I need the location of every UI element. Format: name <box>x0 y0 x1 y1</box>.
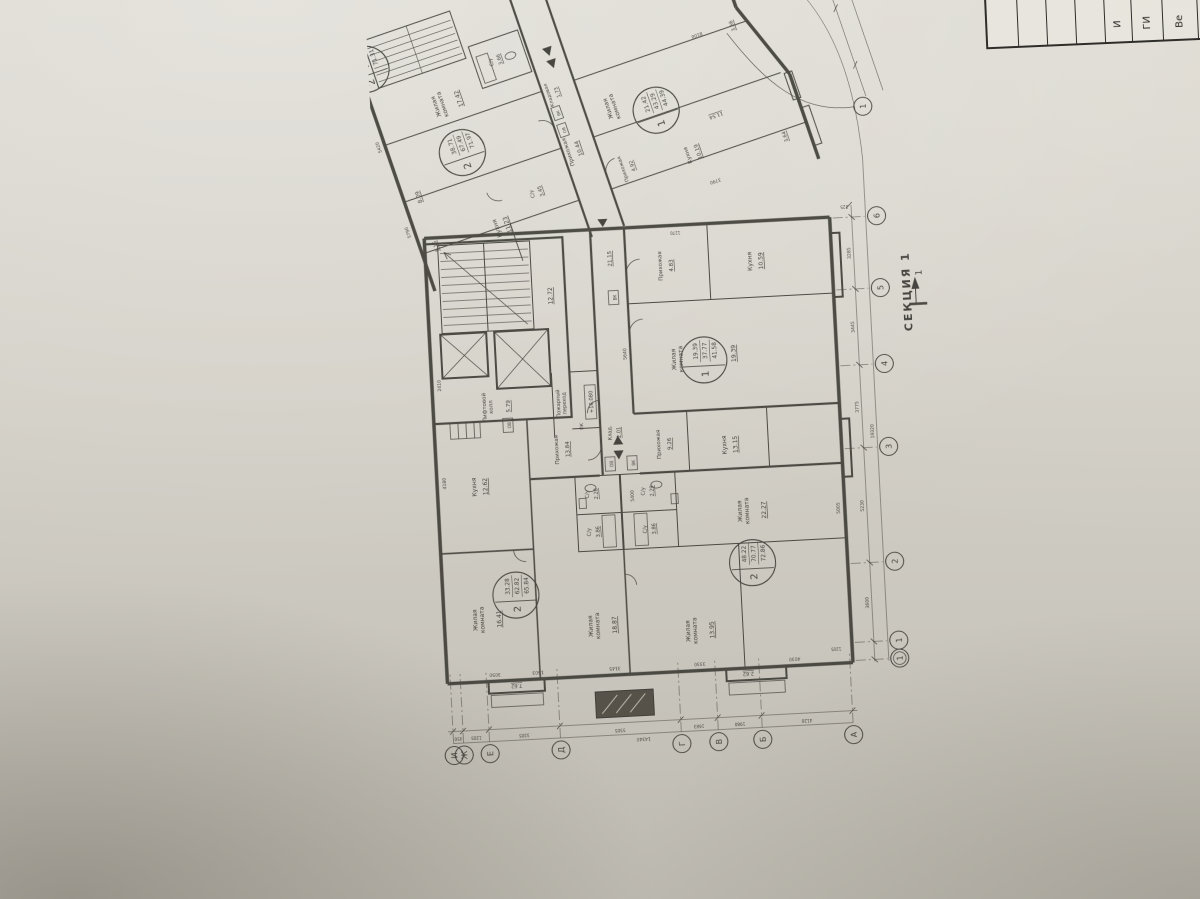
axis-line <box>851 562 883 564</box>
dim-or-area-label: 3145 <box>609 665 621 672</box>
axis-letter: А <box>849 731 858 737</box>
dim-or-area-label: 3.86 <box>651 523 658 534</box>
stamp-area-value: 70.77 <box>751 545 758 562</box>
room-label: Пожарныйпереход <box>554 389 568 418</box>
dim-or-area-label: 1270 <box>670 230 681 236</box>
room-label: С/у <box>528 189 536 199</box>
room-label: Прихожая <box>616 155 630 182</box>
dim-or-area-label: 4180 <box>442 478 449 490</box>
room-label: ВК <box>612 294 617 300</box>
dim-or-area-label: 5230 <box>859 500 866 512</box>
toilet <box>504 51 517 61</box>
axis-letter: Е <box>486 751 495 757</box>
room-label: ВК <box>631 460 636 466</box>
room-label: Жилаякомната <box>472 606 487 634</box>
stamp-divider <box>444 151 484 165</box>
dim-or-area-label: 2.29 <box>649 485 656 496</box>
dim-or-area-label: 3.64 <box>781 130 790 142</box>
dim-or-area-label: 450 <box>454 736 463 741</box>
axis-line <box>836 288 868 290</box>
room-label: С/у <box>587 528 593 536</box>
axis-letter: И <box>450 752 459 758</box>
room-label: Кухня <box>683 146 694 164</box>
dim-or-area-label: 225 <box>840 204 848 209</box>
door-swings <box>499 259 657 591</box>
room-label: Жилаякомната <box>587 612 602 640</box>
axis-letter: Г <box>678 741 687 746</box>
room-label: Прихожая <box>655 430 663 460</box>
room-label: ОВ <box>609 461 614 468</box>
room-label: С/у <box>642 525 648 533</box>
dim-or-area-label: +16.080 <box>588 390 595 413</box>
dim-or-area-label: 13.95 <box>709 621 717 639</box>
axis-number: 5 <box>876 285 885 291</box>
dim-or-area-label: 2410 <box>437 380 444 392</box>
dim-or-area-label: 2.01 <box>616 427 623 438</box>
dim-or-area-label: 22.27 <box>760 501 768 519</box>
dim-or-area-label: 3330 <box>694 660 706 667</box>
floor-plan-svg: 8.095.15Кухня11.23С/у3.45Прихожая10.44Кл… <box>365 0 965 786</box>
dim-or-area-label: 3.66 <box>495 53 504 65</box>
stamp-area-value: 41.58 <box>712 342 719 359</box>
stamp-area-value: 37.77 <box>702 342 709 359</box>
dim-or-area-label: 13.15 <box>732 435 740 453</box>
axis-number: 2 <box>890 558 899 564</box>
room-label: С/у <box>640 487 646 495</box>
room-label: Кухня <box>746 251 754 271</box>
dim-or-area-label: 19320 <box>869 424 876 439</box>
corridor-arrows <box>613 435 624 459</box>
section-title: СЕКЦИЯ 1 <box>898 251 915 332</box>
dim-or-area-label: 1980 <box>734 721 745 727</box>
dim-or-area-label: 3.86 <box>595 526 602 537</box>
stamp-room-count: 2 <box>462 161 474 171</box>
dim-or-area-label: 11.54 <box>708 110 724 120</box>
dim-or-area-label: 2.62 <box>743 670 754 677</box>
axis-line <box>845 447 877 449</box>
title-block-cell: Ве <box>1162 0 1199 40</box>
dim-or-area-label: 1503 <box>532 669 544 676</box>
room-label: ПК <box>579 422 585 430</box>
dim-or-area-label: 17.42 <box>453 89 465 108</box>
entrance-steps <box>458 422 475 439</box>
stamp-area-value: 33.28 <box>505 578 512 595</box>
title-block-cell <box>1017 0 1048 46</box>
title-block-cell <box>986 0 1019 47</box>
dim-or-area-label: 3050 <box>489 671 501 678</box>
dim-or-area-label: 4.92 <box>628 160 637 172</box>
title-block-cell: И <box>1104 0 1133 42</box>
section2-fragment: 8.095.15Кухня11.23С/у3.45Прихожая10.44Кл… <box>365 0 897 296</box>
dim-or-area-label: 5400 <box>630 490 637 502</box>
dim-or-area-label: 2.28 <box>593 488 600 499</box>
dim-or-area-label: 13.84 <box>565 441 572 458</box>
axis-line <box>840 364 872 366</box>
dim-or-area-label: 1.73 <box>553 86 562 98</box>
room-label: Жилаякомната <box>601 92 623 122</box>
dim-or-area-label: 5.79 <box>506 399 513 412</box>
axis-number: 4 <box>880 361 889 367</box>
axis-number: 1 <box>859 103 868 109</box>
axis-letter: Б <box>758 736 767 742</box>
axis-line <box>856 659 888 661</box>
room-label: Клад. <box>607 425 614 441</box>
title-block-cell <box>1046 0 1077 45</box>
room-label: ОВ <box>561 126 568 133</box>
dim-or-area-label: 4030 <box>789 655 801 662</box>
axis-number: 1 <box>895 637 904 643</box>
dim-or-area-label: 3285 <box>846 247 853 259</box>
stair-direction-arrow <box>444 248 528 328</box>
stamp-room-count: 2 <box>749 573 760 580</box>
title-block: И ГИ Ве <box>984 0 1200 49</box>
stamp-area-value: 65.84 <box>524 577 531 594</box>
stamp-divider <box>638 109 678 123</box>
stamp-divider <box>495 600 537 602</box>
dim-or-area-label: 10.19 <box>693 143 704 160</box>
dim-or-area-label: 3600 <box>865 597 872 609</box>
dim-or-area-label: 8.09 <box>414 190 424 204</box>
dim-or-area-label: 1683 <box>693 723 704 729</box>
room-label: Прихожая <box>657 251 665 281</box>
dim-or-area-label: 10.59 <box>757 252 765 270</box>
dim-or-area-label: 7.62 <box>511 682 522 689</box>
bathtub <box>602 515 617 548</box>
dim-or-area-label: 10.44 <box>574 139 585 156</box>
drawing-sheet: 8.095.15Кухня11.23С/у3.45Прихожая10.44Кл… <box>365 0 965 786</box>
stamp-area-value: 72.86 <box>761 544 768 561</box>
room-label: С/у <box>487 57 495 67</box>
room-label: Кухня <box>721 435 729 455</box>
dim-or-area-label: 5640 <box>622 348 629 360</box>
room-label: Прихожая <box>554 435 562 465</box>
dim-or-area-label: 5505 <box>614 728 625 734</box>
axis-letter: Ж <box>460 750 469 759</box>
title-block-cell: ГИ <box>1131 0 1164 41</box>
dim-or-area-label: 19.39 <box>730 344 738 362</box>
dim-or-area-label: 12.72 <box>547 287 555 305</box>
stamp-divider <box>683 365 725 367</box>
dim-or-area-label: 1205 <box>831 646 842 652</box>
stamp-area-value: 19.39 <box>693 343 700 360</box>
stamp-room-count: 1 <box>700 370 711 377</box>
apartment-stamp-circle <box>365 40 395 98</box>
room-label: ОВ <box>507 422 512 429</box>
dim-or-area-label: 14340 <box>636 735 651 742</box>
dim-or-area-label: 3790 <box>709 176 722 185</box>
balcony-slab <box>595 689 654 718</box>
axis-leader-line <box>727 27 854 114</box>
stamp-area-value: 48.22 <box>742 545 749 562</box>
room-label: ВК <box>555 110 562 117</box>
stamp-area-value: 62.82 <box>515 577 522 594</box>
room-label: Кухня <box>471 477 479 497</box>
room-label: Лифтовойхолл <box>480 392 495 422</box>
dim-or-area-label: 18.87 <box>611 616 619 634</box>
section-cut-number: 1 <box>914 269 924 275</box>
axis-number: 6 <box>872 213 881 219</box>
dim-or-area-label: 12.62 <box>482 478 490 496</box>
room-label: Жилаякомната <box>429 90 451 120</box>
section1-walls <box>424 207 864 726</box>
dim-or-area-label: 16.41 <box>496 610 504 628</box>
room-label: Жилаякомната <box>684 617 699 645</box>
dim-or-area-label: 3.45 <box>537 185 546 197</box>
dim-or-area-label: 3445 <box>850 321 857 333</box>
room-label: Жилаякомната <box>736 497 751 525</box>
stamp-room-count: 1 <box>656 118 668 128</box>
dim-or-area-label: 5005 <box>836 502 843 514</box>
axis-letter: Д <box>557 747 566 754</box>
room-label: Кладовая <box>543 83 557 108</box>
dim-or-area-label: 4120 <box>801 718 812 724</box>
dim-or-area-label: 3775 <box>854 401 861 413</box>
photo-of-floor-plan: 8.095.15Кухня11.23С/у3.45Прихожая10.44Кл… <box>0 0 1200 899</box>
stamp-divider <box>732 568 774 570</box>
room-label: С/у <box>585 490 591 498</box>
dim-or-area-label: 21.15 <box>607 250 614 267</box>
axis-number: 1 <box>895 655 904 661</box>
axis-letter: В <box>715 739 724 745</box>
title-block-cell <box>1075 0 1106 43</box>
dim-or-area-label: 3205 <box>519 733 530 739</box>
stamp-room-count: 2 <box>513 606 524 613</box>
axis-line <box>833 216 865 218</box>
dim-or-area-label: 3.66 <box>728 19 737 31</box>
dim-or-area-label: 9.26 <box>667 437 674 450</box>
axis-number: 3 <box>884 444 893 450</box>
dim-or-area-label: 4.83 <box>669 259 676 272</box>
dim-or-area-label: 11.23 <box>502 215 514 234</box>
stamp-room-count: 2 <box>366 77 378 87</box>
axis-line <box>855 641 887 643</box>
dim-or-area-label: 1205 <box>471 735 482 741</box>
